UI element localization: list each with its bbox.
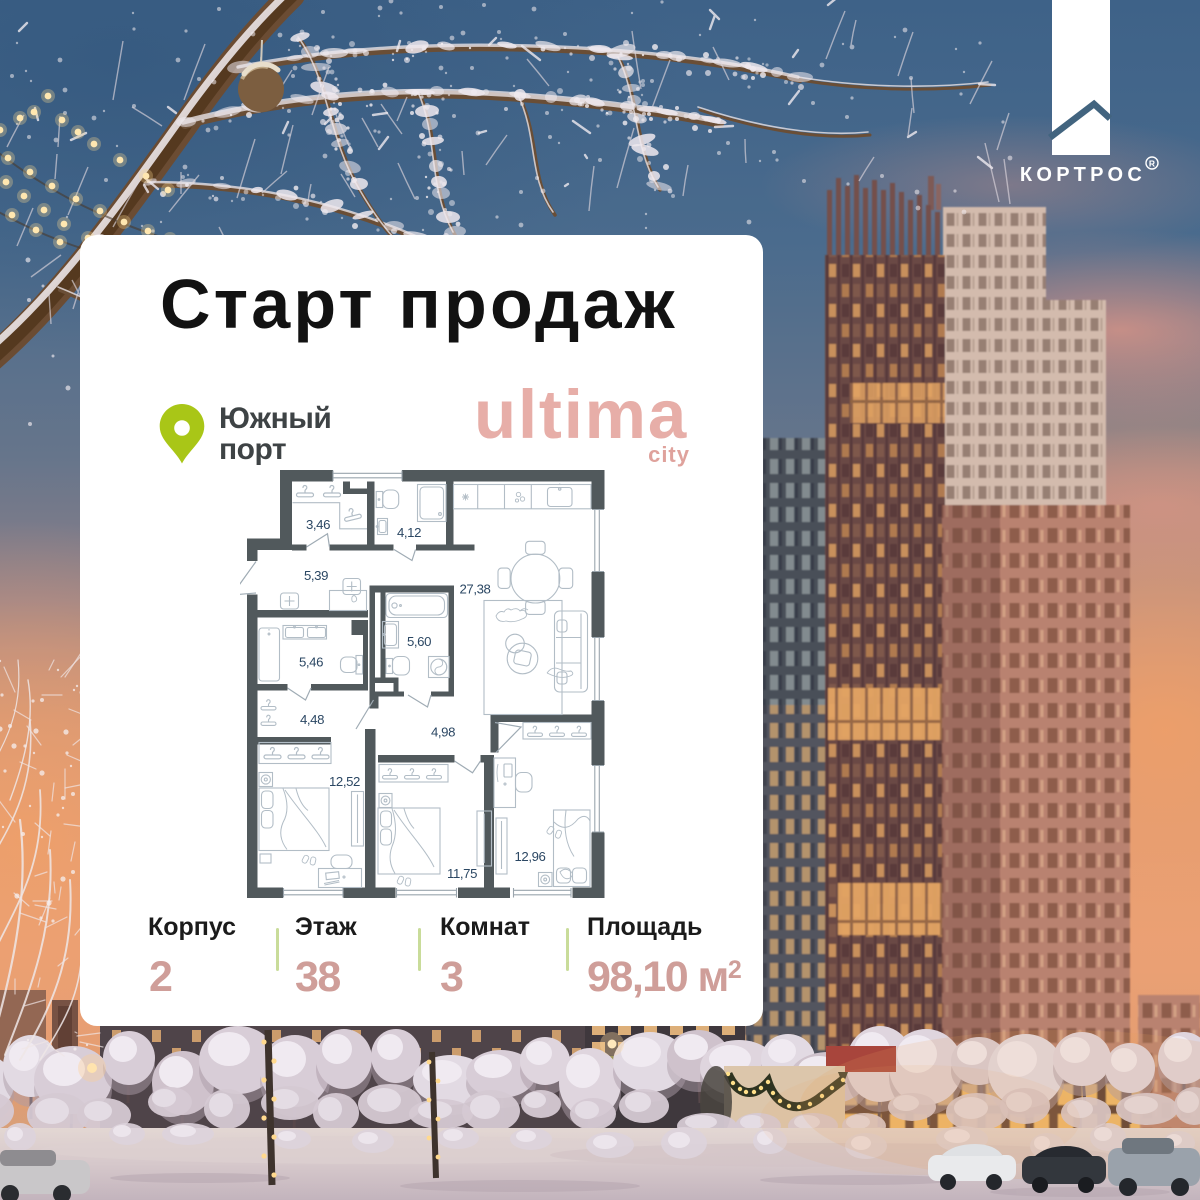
svg-text:4,98: 4,98 xyxy=(431,725,455,740)
svg-text:5,46: 5,46 xyxy=(299,655,323,670)
svg-text:11,75: 11,75 xyxy=(447,866,477,881)
svg-text:12,52: 12,52 xyxy=(329,774,360,789)
svg-text:3,46: 3,46 xyxy=(306,517,330,532)
svg-text:4,12: 4,12 xyxy=(397,525,421,540)
svg-text:4,48: 4,48 xyxy=(300,712,324,727)
svg-text:5,60: 5,60 xyxy=(407,634,431,649)
svg-text:27,38: 27,38 xyxy=(459,582,490,597)
svg-text:5,39: 5,39 xyxy=(304,568,328,583)
svg-text:12,96: 12,96 xyxy=(514,849,545,864)
